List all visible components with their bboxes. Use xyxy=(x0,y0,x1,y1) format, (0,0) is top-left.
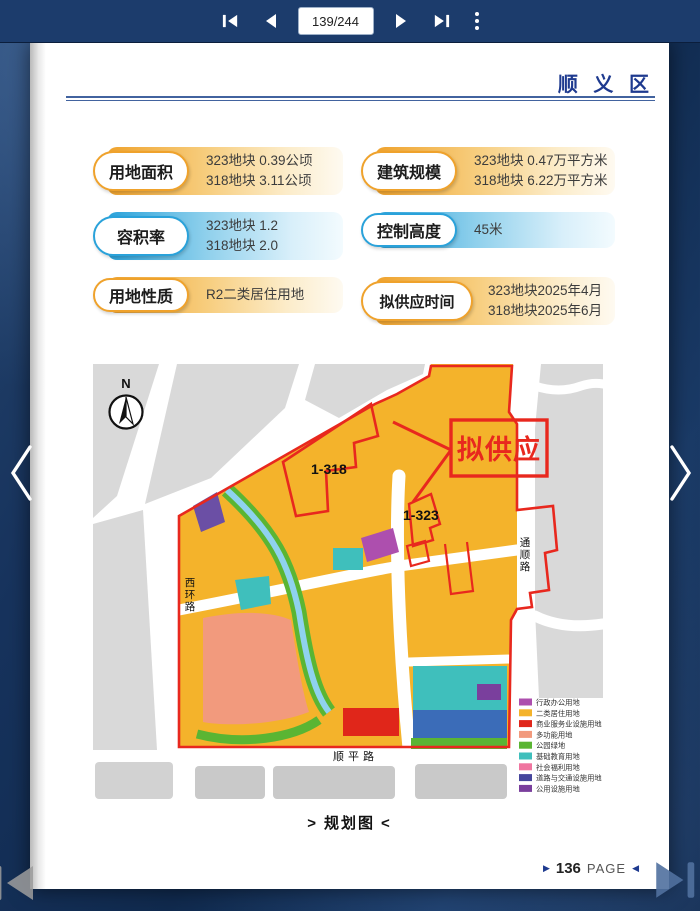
caption-text: 规划图 xyxy=(324,815,375,832)
svg-text:商业服务业设施用地: 商业服务业设施用地 xyxy=(536,720,602,729)
caption-arrow-left-icon: > xyxy=(307,815,318,832)
pdf-toolbar xyxy=(0,0,700,43)
card-value-line: 318地块2025年6月 xyxy=(488,301,602,321)
road-label-east: 通顺路 xyxy=(520,537,531,573)
card-value-line: 323地块 0.47万平方米 xyxy=(474,151,608,171)
card-value-line: R2二类居住用地 xyxy=(206,285,304,305)
card-floor-area-ratio: 容积率 323地块 1.2318地块 2.0 xyxy=(93,211,343,261)
kebab-menu-icon xyxy=(474,11,480,31)
card-label: 用地性质 xyxy=(93,278,189,312)
road-label-west: 西环路 xyxy=(185,577,196,613)
card-value-line: 323地块2025年4月 xyxy=(488,281,602,301)
next-icon xyxy=(394,13,409,29)
skip-first-icon xyxy=(221,13,240,29)
overlay-skip-first-icon xyxy=(0,862,39,904)
parcel-318-label: 1-318 xyxy=(311,461,347,477)
skip-last-icon xyxy=(432,13,451,29)
card-value-line: 323地块 1.2 xyxy=(206,216,278,236)
card-value-line: 323地块 0.39公顷 xyxy=(206,151,313,171)
svg-text:二类居住用地: 二类居住用地 xyxy=(536,709,580,718)
svg-text:多功能用地: 多功能用地 xyxy=(536,730,573,739)
svg-text:公园绿地: 公园绿地 xyxy=(536,741,566,750)
previous-icon xyxy=(263,13,278,29)
page-footer: ▶ 136 PAGE ◀ xyxy=(543,860,639,877)
card-supply-time: 拟供应时间 323地块2025年4月318地块2025年6月 xyxy=(361,276,615,326)
overlay-skip-first-button[interactable] xyxy=(0,862,39,904)
previous-page-button[interactable] xyxy=(260,10,281,32)
card-height-limit: 控制高度 45米 xyxy=(361,211,615,249)
map-bottom-blocks xyxy=(95,762,507,799)
card-label: 控制高度 xyxy=(361,213,457,247)
card-value-line: 45米 xyxy=(474,220,503,240)
card-label: 容积率 xyxy=(93,216,189,256)
card-value-line: 318地块 2.0 xyxy=(206,236,278,256)
chevron-left-icon xyxy=(8,444,34,502)
card-land-area: 用地面积 323地块 0.39公顷318地块 3.11公顷 xyxy=(93,146,343,196)
next-page-arrow[interactable] xyxy=(668,444,694,502)
first-page-button[interactable] xyxy=(218,10,243,32)
parcel-323-label: 1-323 xyxy=(403,507,439,523)
document-page: 顺 义 区 用地面积 323地块 0.39公顷318地块 3.11公顷 建筑规模… xyxy=(30,42,669,889)
svg-text:社会福利用地: 社会福利用地 xyxy=(536,763,580,772)
footer-arrow-right-icon: ◀ xyxy=(632,863,639,874)
overlay-skip-last-button[interactable] xyxy=(650,858,698,902)
header-divider xyxy=(66,96,655,101)
card-value-line: 318地块 6.22万平方米 xyxy=(474,171,608,191)
card-label: 建筑规模 xyxy=(361,151,457,191)
svg-text:道路与交通设施用地: 道路与交通设施用地 xyxy=(536,774,602,783)
footer-arrow-left-icon: ▶ xyxy=(543,863,550,874)
chevron-right-icon xyxy=(668,444,694,502)
svg-text:公用设施用地: 公用设施用地 xyxy=(536,784,580,793)
callout-label: 拟供应 xyxy=(457,434,541,465)
last-page-button[interactable] xyxy=(429,10,454,32)
more-options-button[interactable] xyxy=(471,8,483,34)
info-cards: 用地面积 323地块 0.39公顷318地块 3.11公顷 建筑规模 323地块… xyxy=(93,146,615,326)
page-title: 顺 义 区 xyxy=(558,68,654,97)
card-label: 用地面积 xyxy=(93,151,189,191)
caption-arrow-right-icon: < xyxy=(381,815,392,832)
card-label: 拟供应时间 xyxy=(361,281,473,321)
svg-text:基础教育用地: 基础教育用地 xyxy=(536,752,580,761)
footer-page-number: 136 xyxy=(556,860,581,877)
card-land-use: 用地性质 R2二类居住用地 xyxy=(93,276,343,314)
previous-page-arrow[interactable] xyxy=(8,444,34,502)
map-caption: >规划图< xyxy=(30,812,669,833)
card-building-scale: 建筑规模 323地块 0.47万平方米318地块 6.22万平方米 xyxy=(361,146,615,196)
svg-text:N: N xyxy=(121,376,130,391)
planning-map: 拟供应 1-318 1-323 N 西环路 通顺路 顺平路 行政办公用地 二类居… xyxy=(93,364,603,800)
footer-page-label: PAGE xyxy=(587,861,626,876)
next-page-button[interactable] xyxy=(391,10,412,32)
svg-text:行政办公用地: 行政办公用地 xyxy=(536,698,580,707)
road-label-south: 顺平路 xyxy=(333,750,378,763)
card-value-line: 318地块 3.11公顷 xyxy=(206,171,313,191)
page-number-input[interactable] xyxy=(298,7,374,35)
overlay-skip-last-icon xyxy=(650,858,698,902)
